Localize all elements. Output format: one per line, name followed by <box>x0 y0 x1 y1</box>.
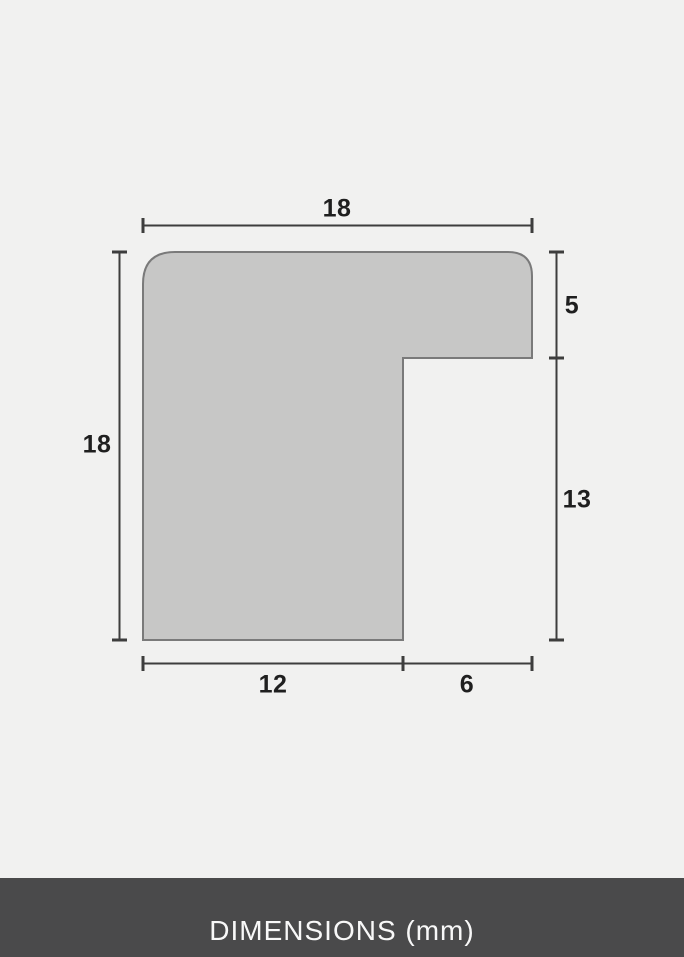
rabbet-height-label: 13 <box>563 488 592 513</box>
right-dimension-line <box>549 252 564 640</box>
left-height-label: 18 <box>83 433 112 458</box>
footer-caption: DIMENSIONS (mm) <box>209 917 474 945</box>
frame-profile-diagram-screen: 18 18 5 13 12 6 DIMENSIONS (mm) <box>0 0 684 957</box>
footer-bar: DIMENSIONS (mm) <box>0 878 684 957</box>
profile-diagram: 18 18 5 13 12 6 <box>0 0 684 878</box>
profile-shape <box>143 252 532 640</box>
bottom-right-width-label: 6 <box>460 673 474 698</box>
bottom-dimension-line <box>143 656 532 671</box>
bottom-left-width-label: 12 <box>259 673 288 698</box>
top-width-label: 18 <box>323 197 352 222</box>
left-dimension-line <box>112 252 127 640</box>
lip-height-label: 5 <box>565 294 579 319</box>
